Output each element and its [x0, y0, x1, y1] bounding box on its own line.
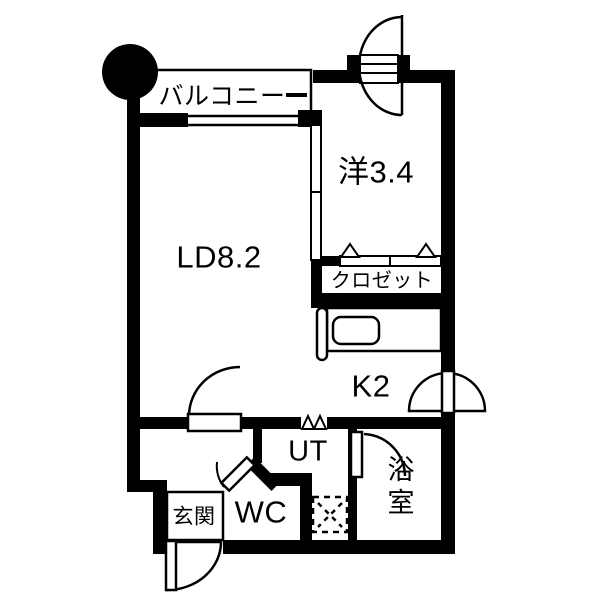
balcony-label: バルコニー [158, 85, 285, 110]
wall-top-right-of-door [410, 70, 455, 83]
north-marker-circle [102, 44, 158, 100]
kitchen-label: K2 [352, 371, 391, 402]
hall-swing-door [188, 414, 241, 431]
bathroom-label: 浴室 [385, 455, 412, 521]
wall-under-balcony [129, 113, 188, 127]
kitchen-counter-end [317, 308, 327, 360]
utility-label: UT [288, 438, 328, 467]
toilet-label: WC [235, 497, 288, 528]
wall-bottom [223, 540, 455, 554]
door-jamb-right [398, 55, 410, 83]
wall-wc-right [300, 473, 312, 554]
wc-swing-door [221, 457, 254, 490]
room-door-threshold [360, 55, 398, 83]
wall-closet-bottom [311, 293, 455, 308]
kitchen-sink [333, 317, 379, 344]
hall-swing-door-arc [189, 367, 240, 416]
closet-label: クロゼット [331, 271, 434, 291]
floor-plan [0, 0, 600, 600]
floorplan-canvas: バルコニー 洋3.4 LD8.2 クロゼット K2 UT WC 浴室 玄関 [0, 0, 600, 600]
wall-bottom-left-jog [127, 480, 167, 492]
wall-top-left-of-door [313, 70, 347, 83]
bathroom-swing-door [351, 432, 362, 477]
closet-door-triangle-left [341, 244, 359, 257]
wall-ld-bottom-b [240, 417, 302, 429]
entry-door [166, 541, 176, 590]
closet-door-triangle-right [417, 244, 435, 257]
living-dining-label: LD8.2 [176, 242, 261, 273]
wall-right-lower [441, 412, 455, 554]
wall-ld-bottom-c [326, 417, 455, 429]
entrance-label: 玄関 [173, 507, 216, 528]
balcony-partition-mark [286, 93, 307, 97]
wall-right-upper [441, 70, 455, 372]
wall-ld-bottom-a [127, 417, 189, 429]
western-room-label: 洋3.4 [338, 157, 414, 188]
exterior-swing-door [442, 371, 454, 413]
